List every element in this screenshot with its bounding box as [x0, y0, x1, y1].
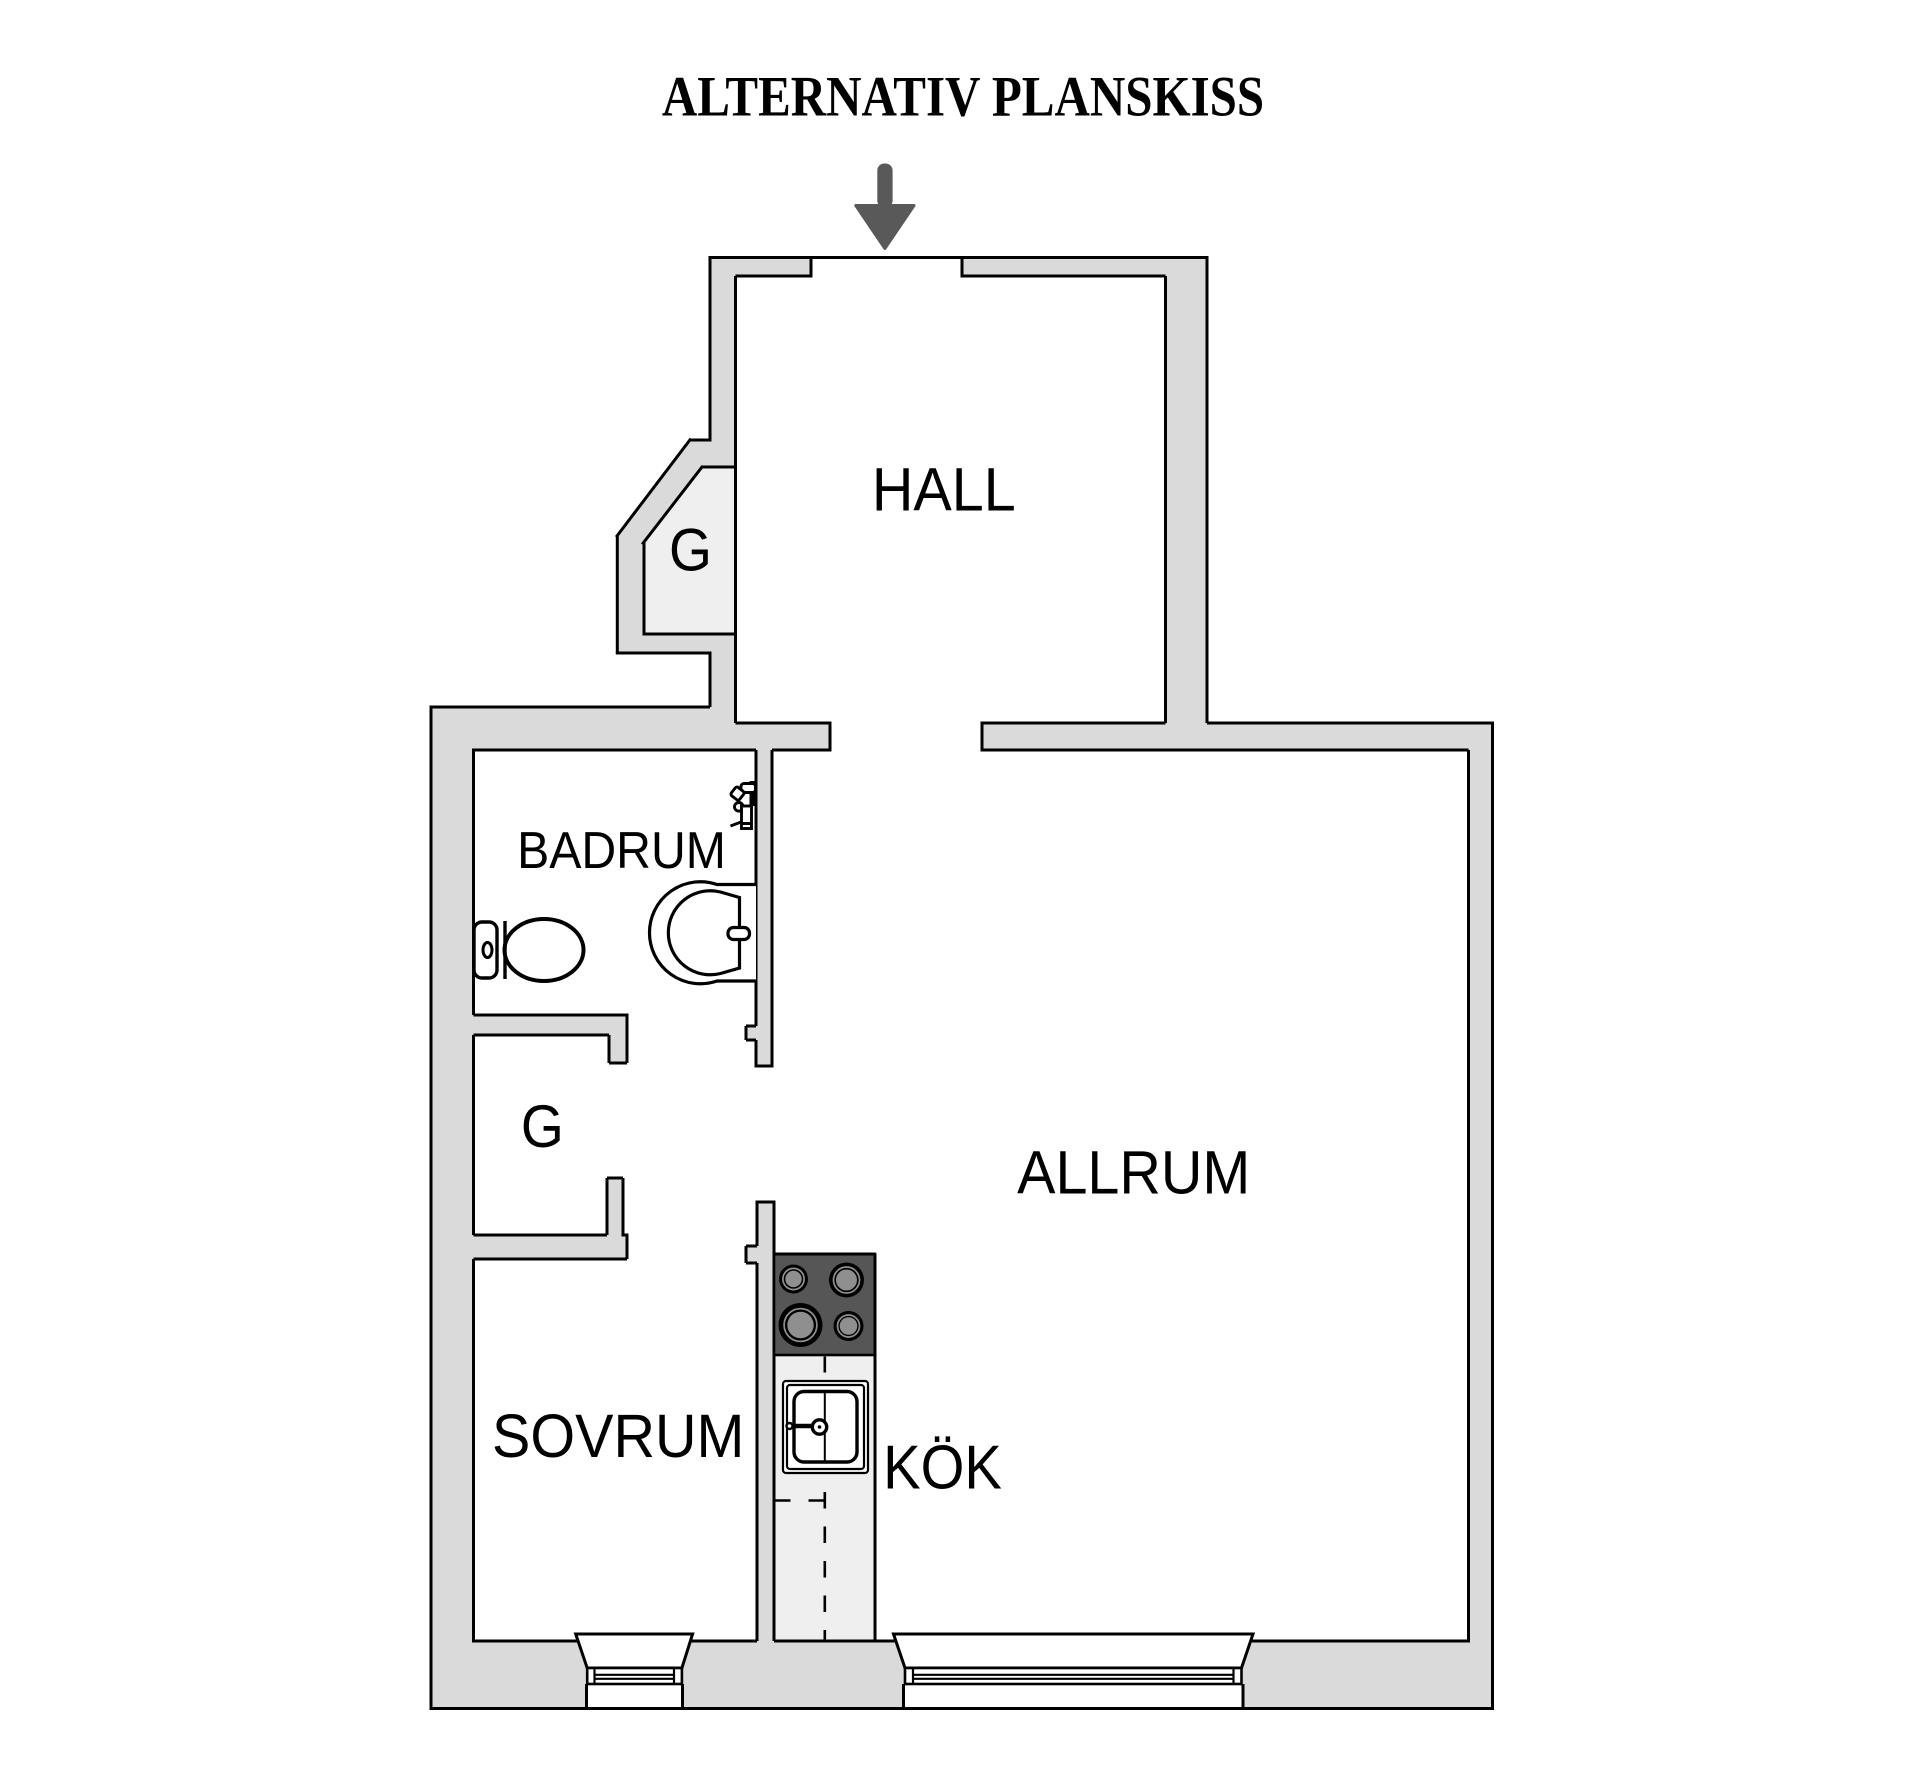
svg-text:G: G [669, 517, 712, 584]
svg-text:SOVRUM: SOVRUM [492, 1401, 744, 1470]
svg-text:G: G [521, 1094, 564, 1161]
svg-text:ALTERNATIV PLANSKISS: ALTERNATIV PLANSKISS [662, 64, 1264, 129]
svg-text:KÖK: KÖK [883, 1432, 1002, 1502]
svg-text:BADRUM: BADRUM [517, 822, 726, 880]
svg-text:ALLRUM: ALLRUM [1017, 1138, 1250, 1207]
svg-text:HALL: HALL [872, 455, 1016, 524]
